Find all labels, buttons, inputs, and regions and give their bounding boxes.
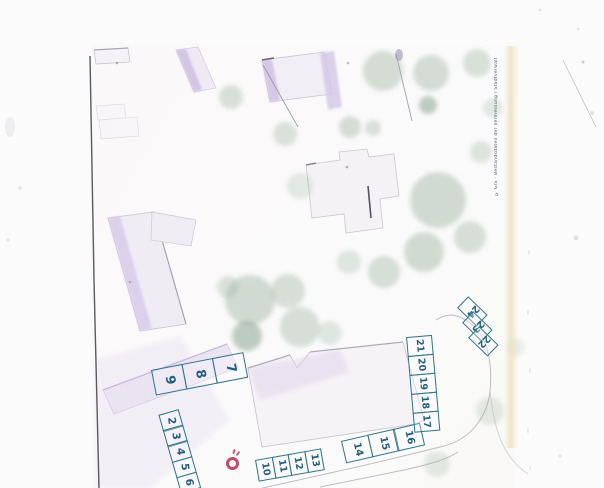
- tree-canopy: [365, 120, 381, 136]
- parking-space-number: 13: [309, 453, 321, 468]
- tree-canopy: [463, 49, 491, 77]
- tree-canopy: [219, 85, 243, 109]
- tree-canopy: [424, 451, 450, 477]
- building-outlines-faint: [96, 104, 139, 139]
- tree-canopy: [413, 55, 449, 91]
- parking-space-number: 18: [420, 396, 431, 410]
- tree-canopy: [404, 232, 444, 272]
- parking-space-number: 7: [223, 362, 237, 373]
- tree-canopy: [271, 274, 305, 308]
- parking-space-number: 22: [475, 333, 491, 349]
- red-circle-marker: [226, 457, 239, 470]
- parking-space-number: 19: [418, 377, 429, 391]
- tree-canopy: [232, 321, 262, 351]
- building-top-left: [94, 48, 130, 64]
- tree-canopy: [280, 307, 320, 347]
- tree-canopy: [368, 256, 400, 288]
- tree-canopy: [339, 116, 361, 138]
- tree-canopy: [454, 221, 486, 253]
- tree-canopy: [273, 122, 297, 146]
- tree-canopy: [337, 250, 361, 274]
- parking-space-number: 6: [183, 479, 194, 487]
- parking-space-number: 21: [415, 339, 426, 353]
- building-middle: [306, 149, 399, 233]
- tree-canopy: [318, 321, 342, 345]
- parking-space-number: 20: [416, 358, 427, 372]
- tree-canopy: [419, 96, 437, 114]
- tree-canopy: [217, 276, 239, 298]
- parking-space-number: 3: [170, 432, 181, 440]
- parking-space-number: 11: [276, 459, 288, 474]
- parking-space-13: 13: [304, 448, 325, 473]
- scanned-site-plan: 987 23456 10111213 141516 2120191817 24 …: [0, 0, 604, 488]
- tree-canopy: [363, 51, 403, 91]
- tree-canopy: [410, 172, 466, 228]
- parking-space-number: 17: [421, 415, 432, 429]
- parking-space-number: 2: [165, 416, 176, 424]
- tree-canopy: [287, 173, 313, 199]
- parking-space-number: 5: [179, 463, 190, 471]
- parking-space-number: 14: [351, 441, 364, 457]
- parking-space-number: 12: [292, 456, 304, 471]
- tree-canopy: [476, 397, 504, 425]
- parking-space-number: 4: [174, 447, 185, 455]
- parking-space-number: 8: [193, 368, 207, 379]
- building-left-annex: [151, 212, 196, 246]
- parking-space-17: 17: [413, 411, 441, 433]
- parking-space-number: 15: [377, 435, 390, 451]
- tree-canopy: [470, 141, 492, 163]
- map-frame-line: [90, 56, 99, 488]
- parking-space-number: 10: [260, 462, 272, 477]
- parking-space-number: 9: [162, 374, 176, 385]
- page-fold-band: [504, 46, 519, 448]
- copyright-microtext: © GIS - Bestandsdaten der Vermessung / S…: [494, 58, 502, 196]
